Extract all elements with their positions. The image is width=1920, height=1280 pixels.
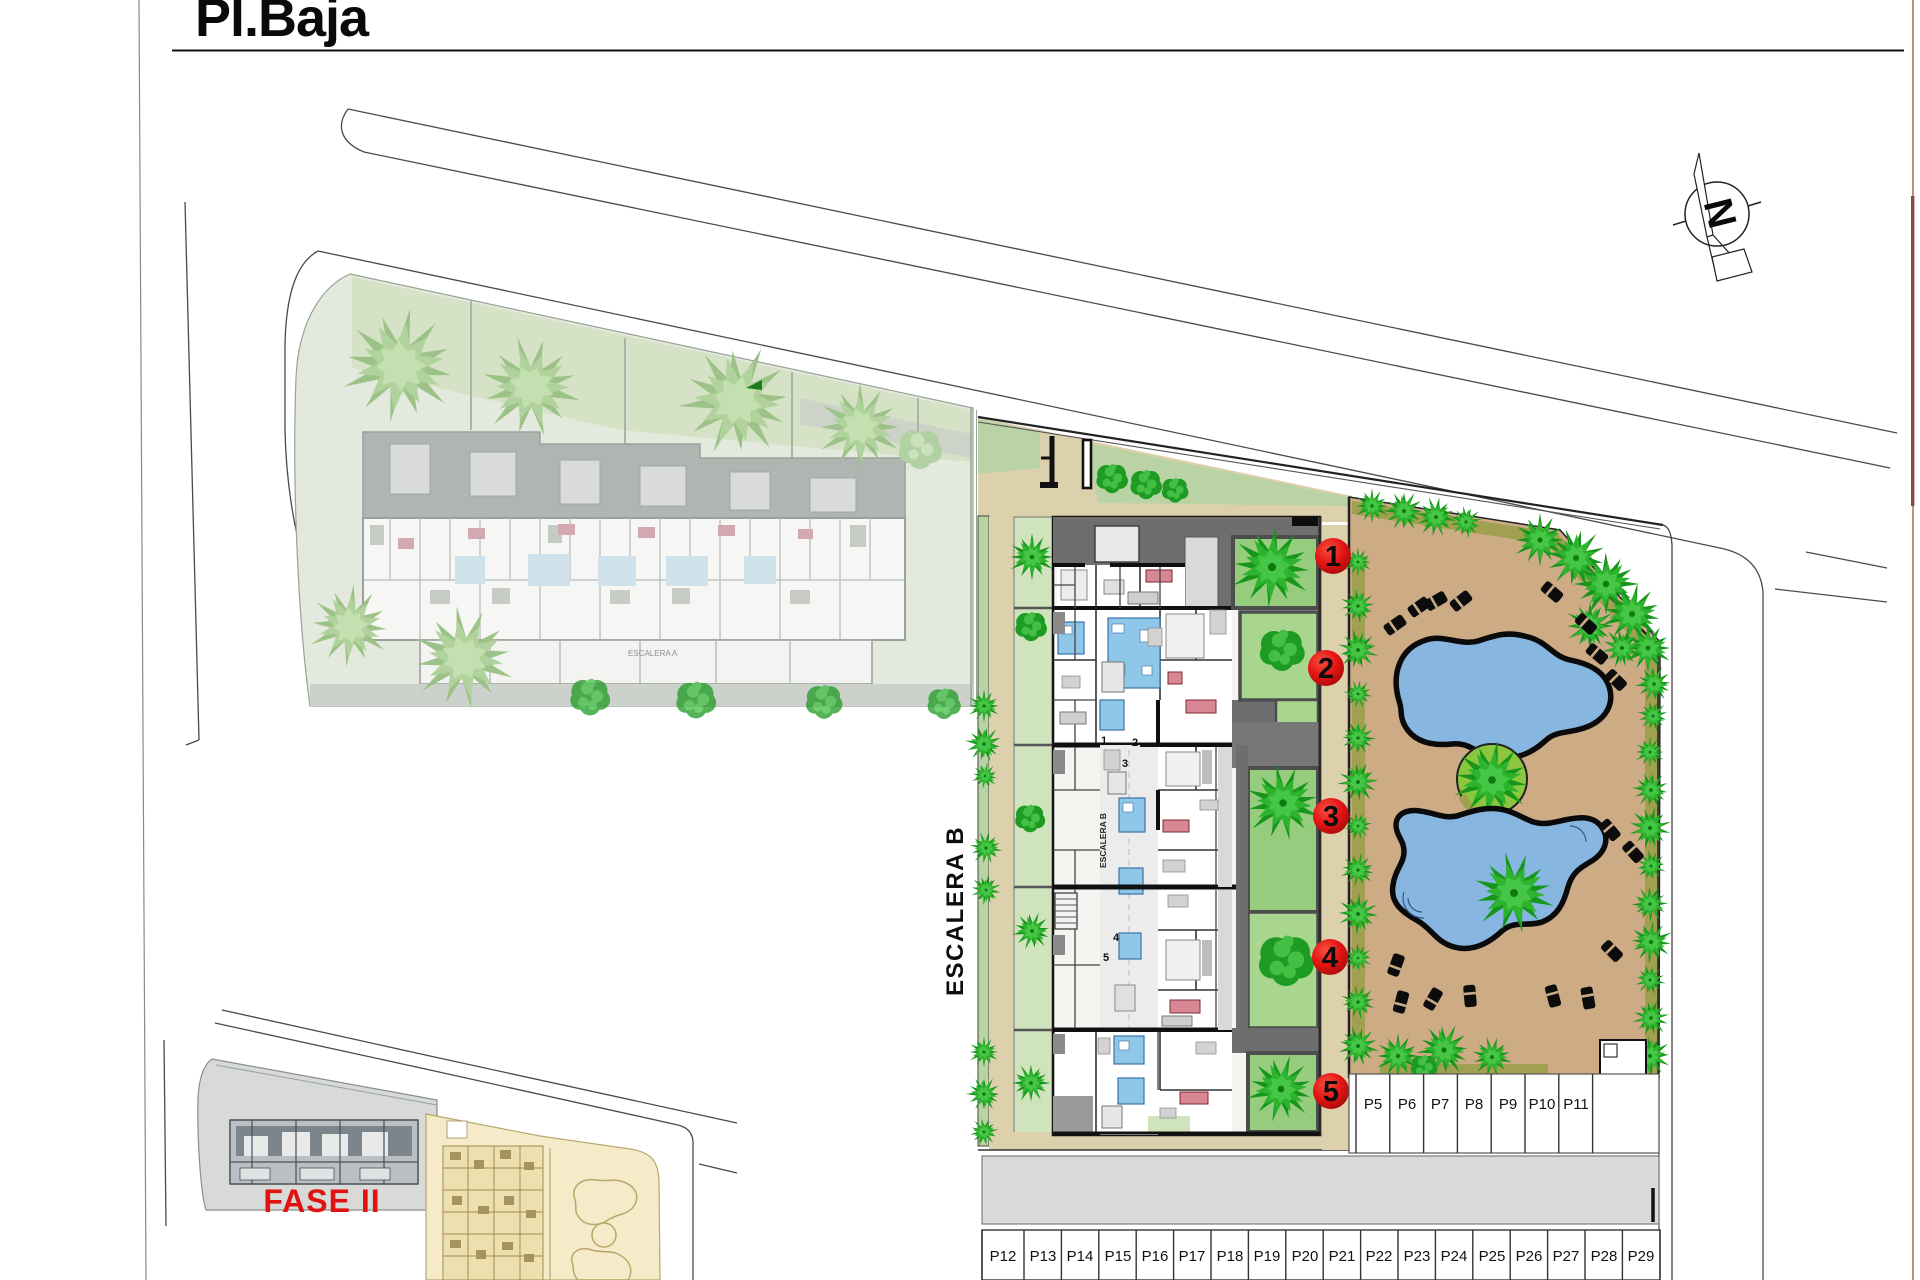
svg-text:P21: P21 [1329,1248,1356,1265]
svg-text:5: 5 [1103,952,1109,964]
svg-text:P27: P27 [1553,1248,1580,1265]
svg-text:3: 3 [1323,801,1339,833]
svg-text:P18: P18 [1217,1248,1244,1265]
svg-text:ESCALERA B: ESCALERA B [942,826,969,996]
svg-text:3: 3 [1122,758,1128,770]
svg-text:P14: P14 [1067,1248,1094,1265]
svg-text:P22: P22 [1366,1248,1393,1265]
svg-text:P20: P20 [1292,1248,1319,1265]
svg-text:1: 1 [1101,735,1107,747]
svg-text:P25: P25 [1479,1248,1506,1265]
svg-text:P12: P12 [990,1248,1017,1265]
svg-text:P15: P15 [1105,1248,1132,1265]
svg-text:ESCALERA A: ESCALERA A [628,649,678,658]
svg-text:P24: P24 [1441,1248,1468,1265]
svg-text:P11: P11 [1563,1096,1589,1113]
svg-text:5: 5 [1323,1076,1339,1108]
svg-text:P7: P7 [1431,1096,1449,1113]
svg-text:P23: P23 [1404,1248,1431,1265]
svg-text:ESCALERA B: ESCALERA B [1098,813,1108,868]
svg-text:P19: P19 [1254,1248,1281,1265]
svg-text:P28: P28 [1591,1248,1618,1265]
svg-text:P26: P26 [1516,1248,1543,1265]
svg-text:P9: P9 [1499,1096,1517,1113]
svg-text:2: 2 [1132,737,1138,749]
svg-text:4: 4 [1113,932,1120,944]
svg-text:P8: P8 [1465,1096,1483,1113]
svg-text:P17: P17 [1179,1248,1206,1265]
svg-text:P6: P6 [1398,1096,1416,1113]
svg-text:P13: P13 [1030,1248,1057,1265]
svg-text:4: 4 [1322,942,1338,974]
svg-text:P16: P16 [1142,1248,1169,1265]
svg-text:P10: P10 [1529,1096,1556,1113]
svg-text:2: 2 [1318,653,1334,685]
svg-text:Pl.Baja: Pl.Baja [195,0,370,48]
svg-text:P29: P29 [1628,1248,1655,1265]
svg-text:P5: P5 [1364,1096,1382,1113]
svg-text:1: 1 [1325,541,1341,573]
svg-text:FASE II: FASE II [263,1183,380,1219]
